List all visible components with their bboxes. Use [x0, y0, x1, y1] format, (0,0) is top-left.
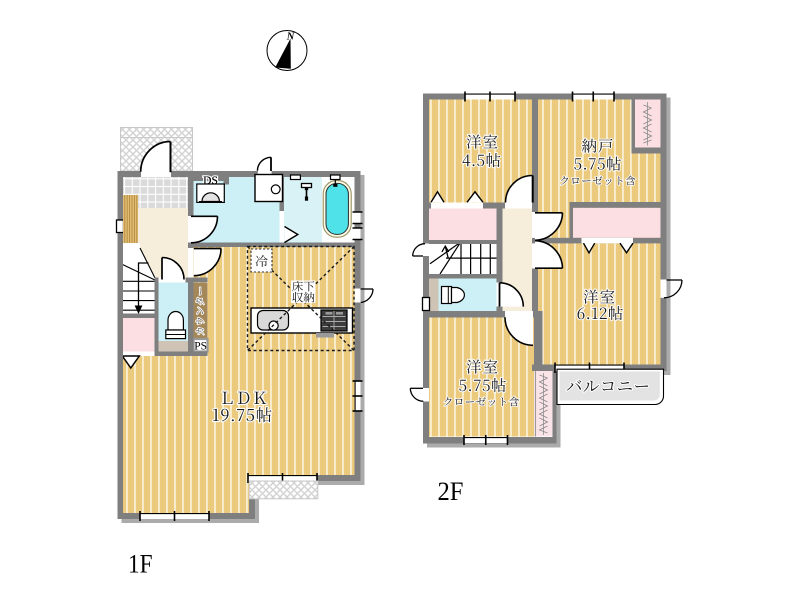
svg-text:N: N	[286, 32, 295, 43]
svg-text:PS: PS	[194, 341, 207, 353]
svg-text:2F: 2F	[438, 477, 464, 506]
svg-text:1F: 1F	[128, 550, 153, 579]
